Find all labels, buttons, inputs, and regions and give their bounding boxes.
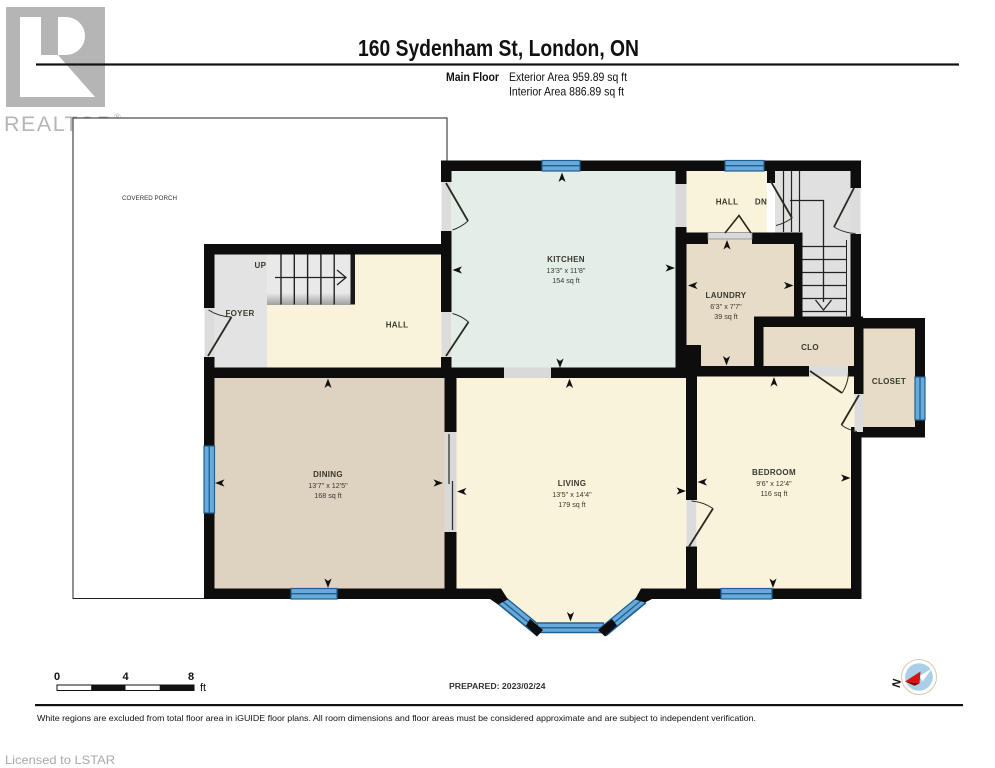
svg-text:HALL: HALL — [386, 321, 409, 330]
svg-text:Licensed to LSTAR: Licensed to LSTAR — [5, 753, 115, 767]
svg-text:Interior Area 886.89 sq ft: Interior Area 886.89 sq ft — [509, 85, 625, 99]
svg-text:179 sq ft: 179 sq ft — [558, 500, 586, 509]
svg-text:6'3" x 7'7": 6'3" x 7'7" — [710, 302, 742, 311]
svg-text:0: 0 — [54, 671, 60, 683]
svg-text:4: 4 — [122, 671, 129, 683]
svg-text:Main Floor: Main Floor — [446, 70, 499, 84]
svg-text:168 sq ft: 168 sq ft — [314, 491, 342, 500]
svg-text:HALL: HALL — [716, 198, 739, 207]
svg-text:KITCHEN: KITCHEN — [547, 255, 585, 264]
svg-text:CLOSET: CLOSET — [872, 377, 906, 386]
svg-text:13'5" x 14'4": 13'5" x 14'4" — [552, 490, 592, 499]
svg-text:13'7" x 12'5": 13'7" x 12'5" — [308, 481, 348, 490]
svg-text:DN: DN — [755, 198, 767, 207]
svg-text:13'3" x 11'8": 13'3" x 11'8" — [547, 266, 586, 275]
svg-text:154 sq ft: 154 sq ft — [552, 276, 580, 285]
svg-text:LIVING: LIVING — [558, 479, 586, 488]
svg-text:BEDROOM: BEDROOM — [752, 468, 796, 477]
svg-text:DINING: DINING — [313, 470, 343, 479]
svg-text:COVERED PORCH: COVERED PORCH — [122, 195, 177, 202]
svg-text:CLO: CLO — [801, 343, 819, 352]
svg-text:39 sq ft: 39 sq ft — [714, 312, 738, 321]
svg-text:116 sq ft: 116 sq ft — [760, 489, 787, 498]
svg-text:Exterior Area 959.89 sq ft: Exterior Area 959.89 sq ft — [509, 70, 628, 84]
svg-text:PREPARED: 2023/02/24: PREPARED: 2023/02/24 — [449, 681, 546, 691]
svg-text:UP: UP — [255, 261, 267, 270]
svg-text:8: 8 — [188, 671, 194, 683]
svg-text:LAUNDRY: LAUNDRY — [706, 291, 747, 300]
svg-text:9'6" x 12'4": 9'6" x 12'4" — [756, 479, 792, 488]
svg-text:ft: ft — [200, 682, 206, 694]
svg-text:White regions are excluded fro: White regions are excluded from total fl… — [37, 713, 756, 723]
svg-text:160 Sydenham St, London, ON: 160 Sydenham St, London, ON — [358, 35, 639, 61]
svg-text:FOYER: FOYER — [225, 309, 254, 318]
